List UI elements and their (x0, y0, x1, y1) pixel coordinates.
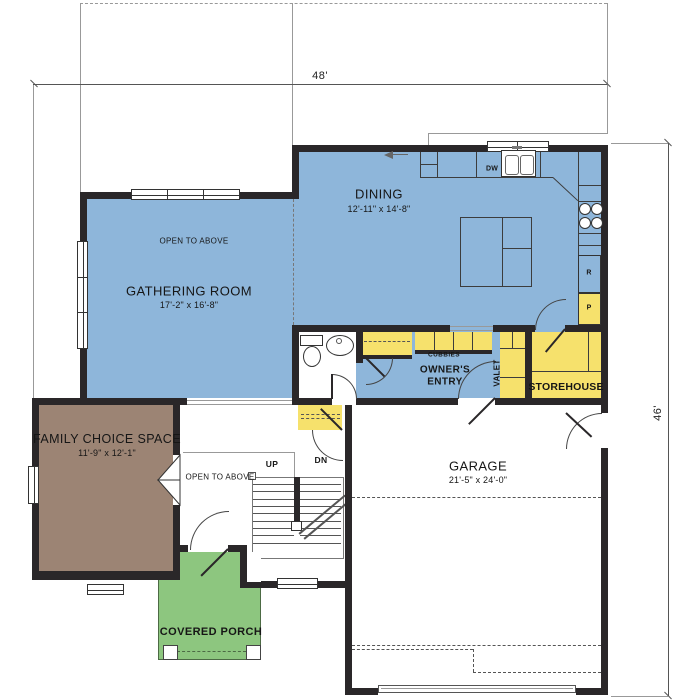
counter-line (437, 152, 438, 178)
room-label-valet: VALET (493, 359, 502, 386)
wall-segment (292, 145, 299, 199)
window-mullion (87, 590, 124, 591)
sink-bowl (505, 155, 519, 175)
wall-segment (292, 145, 608, 152)
floor-plan: 48' 46' GATHERING ROOM 17'-2" x 16'-8" O… (0, 0, 700, 700)
wall-segment (352, 398, 458, 405)
island-line (502, 248, 532, 249)
stairs-down-label: DN (314, 455, 327, 465)
opening-sill (187, 404, 292, 405)
toilet-tank (300, 335, 323, 346)
wall-segment (173, 398, 180, 455)
sink-faucet (512, 146, 522, 149)
garage-dashed-line (473, 649, 474, 672)
window-mullion (77, 312, 88, 313)
wall-segment (565, 325, 608, 332)
window-mullion (83, 241, 84, 349)
stair-tread (253, 521, 294, 522)
room-divider-dashed (293, 199, 294, 325)
stair-tread (253, 535, 294, 536)
cubby-divider (434, 332, 435, 350)
stair-landing-line (253, 543, 341, 544)
cooktop-burner (579, 203, 591, 215)
wall-segment (32, 398, 187, 405)
counter-line (420, 152, 421, 178)
kitchen-island (460, 217, 532, 287)
garage-dashed-line (352, 645, 601, 646)
window-mullion (34, 466, 35, 504)
opening-sill (450, 326, 493, 327)
dimension-line-width (33, 84, 607, 85)
island-line (502, 218, 503, 286)
dimension-height-label: 46' (652, 405, 664, 421)
wall-segment (525, 325, 532, 405)
stair-tread (253, 506, 294, 507)
double-door-family-choice (154, 453, 184, 508)
foyer-closet (298, 403, 342, 430)
window-mullion (77, 277, 88, 278)
room-dims-dining: 12'-11" x 14'-8" (348, 204, 411, 214)
floor-family-choice-space (39, 405, 173, 571)
window-mullion (167, 189, 168, 200)
roof-outline (80, 3, 81, 193)
exterior-patch (247, 552, 261, 582)
room-label-dining: DINING (355, 187, 403, 202)
wall-segment (576, 688, 608, 695)
counter-line (420, 164, 437, 165)
roof-outline (428, 133, 608, 134)
roof-outline (607, 3, 608, 134)
wall-segment (292, 325, 450, 332)
wall-segment (292, 325, 299, 405)
floor-gathering-room (87, 199, 299, 398)
direction-arrow-line (393, 154, 408, 155)
valet-line (512, 332, 513, 348)
stair-tread (300, 499, 341, 500)
stair-tread (300, 491, 341, 492)
stair-tread (300, 484, 341, 485)
sink-drain (336, 338, 342, 344)
opening-sill (187, 400, 292, 401)
cubby-divider (453, 332, 454, 350)
window-mullion (277, 584, 318, 585)
stair-tread (253, 491, 294, 492)
stair-center-wall (294, 477, 300, 524)
counter-line (578, 185, 601, 186)
stair-tread (300, 506, 341, 507)
valet-line (500, 377, 525, 378)
storehouse-counter-line (588, 332, 589, 372)
garage-door-line (381, 688, 573, 689)
garage-dashed-line (473, 672, 601, 673)
counter-edge (420, 177, 553, 178)
room-label-gathering: GATHERING ROOM (126, 284, 252, 299)
room-label-garage: GARAGE (449, 459, 507, 474)
stair-tread (253, 513, 294, 514)
stair-tread (253, 499, 294, 500)
note-open-to-above-gathering: OPEN TO ABOVE (160, 237, 229, 246)
door-opening-powder (332, 398, 356, 405)
wall-segment (601, 145, 608, 413)
counter-line (540, 152, 541, 178)
appliance-refrigerator-label: R (586, 270, 591, 277)
closet-shelf-dashed (301, 414, 340, 415)
room-label-owners-entry: OWNER'S ENTRY (416, 365, 474, 388)
closet-rod-dashed (301, 418, 340, 419)
appliance-pantry-label: P (587, 305, 592, 312)
opening-sill (450, 330, 493, 331)
counter-line (578, 245, 601, 246)
cubby-divider (472, 332, 473, 350)
cooktop-burner (591, 203, 603, 215)
open-above-boundary (183, 452, 295, 453)
dimension-line-height (668, 143, 669, 696)
garage-dashed-line (352, 497, 601, 498)
porch-post (163, 645, 178, 660)
appliance-dishwasher-label: DW (486, 166, 498, 173)
roof-outline (428, 133, 429, 145)
stair-tread (253, 484, 294, 485)
counter-line (578, 201, 601, 202)
room-label-storehouse: STOREHOUSE (528, 381, 603, 393)
counter-edge (578, 152, 579, 255)
porch-post (246, 645, 261, 660)
dimension-width-label: 48' (312, 70, 328, 82)
label-cubbies: CUBBIES (428, 352, 460, 359)
wall-segment (495, 398, 608, 405)
room-dims-gathering: 17'-2" x 16'-8" (160, 300, 218, 310)
stair-tread (253, 528, 294, 529)
room-label-covered-porch: COVERED PORCH (160, 626, 262, 638)
wall-segment (345, 398, 352, 695)
room-dims-family-choice: 11'-9" x 12'-1" (78, 448, 136, 458)
wall-segment (32, 571, 180, 580)
garage-dashed-line (352, 649, 473, 650)
bench-shelf-dashed (364, 341, 410, 342)
extension-line (611, 696, 668, 697)
garage-door (378, 685, 576, 693)
cooktop-burner (591, 217, 603, 229)
window-mullion (203, 189, 204, 200)
cooktop-burner (579, 217, 591, 229)
open-above-boundary (294, 452, 295, 477)
toilet-bowl (303, 346, 321, 367)
porch-edge-dashed (177, 651, 246, 652)
window-mullion (131, 195, 240, 196)
wall-segment (180, 545, 188, 552)
note-open-to-above-foyer: OPEN TO ABOVE (186, 473, 255, 482)
wall-segment (173, 505, 180, 580)
door-opening-garage-service (601, 413, 608, 448)
wall-segment (240, 545, 247, 588)
door-arc-porch (190, 511, 229, 550)
counter-line (578, 233, 601, 234)
room-dims-garage: 21'-5" x 24'-0" (449, 475, 507, 485)
direction-arrow-icon (384, 151, 393, 159)
roof-outline-dashed (80, 3, 607, 4)
wall-segment (292, 398, 332, 405)
door-leaf-powder (331, 374, 333, 399)
extension-line (33, 85, 34, 398)
valet-line (500, 348, 525, 349)
extension-line (611, 143, 668, 144)
storehouse-counter-line (532, 371, 601, 372)
stairs-up-label: UP (266, 459, 279, 469)
sink-bowl (520, 155, 534, 175)
wall-segment (601, 448, 608, 695)
plan-geometry (0, 0, 700, 700)
wall-segment (345, 688, 378, 695)
room-label-family-choice: FAMILY CHOICE SPACE (33, 432, 181, 446)
wall-segment (247, 581, 278, 588)
roof-outline (292, 3, 293, 145)
stair-tread (300, 521, 341, 522)
counter-line (476, 152, 477, 178)
stair-newel-post (291, 521, 302, 531)
